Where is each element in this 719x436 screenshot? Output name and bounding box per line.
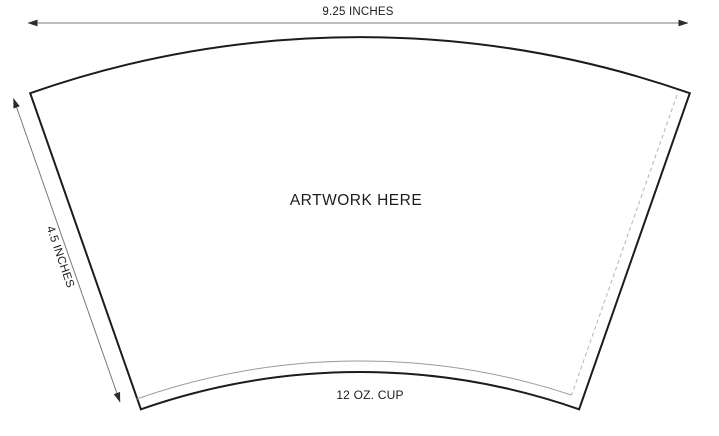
cup-wrap-outline [30,37,690,409]
top-dimension-label: 9.25 INCHES [322,6,393,18]
artwork-placeholder-label: ARTWORK HERE [290,192,422,209]
cup-size-label: 12 OZ. CUP [336,388,403,402]
side-dimension-label: 4.5 INCHES [44,225,76,290]
top-dimension: 9.25 INCHES [28,6,688,23]
cup-template-canvas: 9.25 INCHES 4.5 INCHES ARTWORK HERE 12 O… [0,0,719,436]
cup-template-diagram: 9.25 INCHES 4.5 INCHES ARTWORK HERE 12 O… [0,0,719,436]
